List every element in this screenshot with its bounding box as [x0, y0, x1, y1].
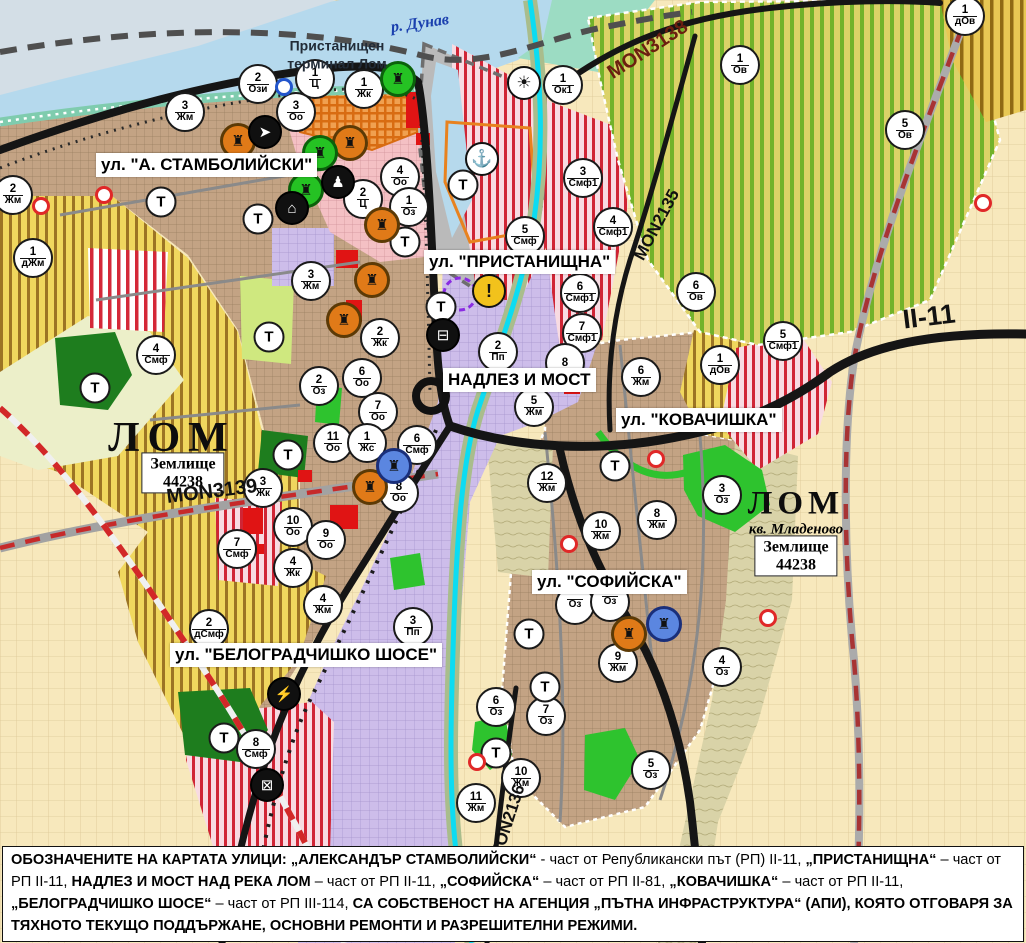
zone-marker-4-Жм: 4Жм	[303, 585, 343, 625]
port-terminal-line2: терминал Лом	[287, 55, 387, 71]
zone-marker-2-Оз: 2Оз	[299, 366, 339, 406]
zone-marker-1-дЖм: 1дЖм	[13, 238, 53, 278]
transport-t-marker: Т	[600, 451, 631, 482]
red-ring-marker	[560, 535, 578, 553]
transport-t-marker: Т	[146, 187, 177, 218]
zone-marker-3-Пп: 3Пп	[393, 607, 433, 647]
zone-marker-2-Жм: 2Жм	[0, 175, 33, 215]
transport-t-marker: Т	[80, 373, 111, 404]
notice-segment: - част от Републикански път (РП) II-11,	[537, 852, 806, 868]
zone-marker-1-дОв: 1дОв	[700, 345, 740, 385]
red-ring-marker	[759, 609, 777, 627]
notice-segment: – част от РП III-114,	[211, 896, 352, 912]
red-ring-marker	[647, 450, 665, 468]
zoning-map-lom: 2Ози1Ц1Жк3Оо3Жм2Жм1дЖм4Оо1Оз2Ц3Жм2Жк6Оо2…	[0, 0, 1026, 943]
zone-marker-9-Оо: 9Оо	[306, 520, 346, 560]
notice-segment: – част от РП II-81,	[539, 874, 669, 890]
key-icon: ➤	[248, 115, 282, 149]
street-label-pristanishtna: ул. "ПРИСТАНИЩНА"	[424, 250, 615, 274]
notice-segment: – част от РП II-11,	[311, 874, 440, 890]
notice-segment: „БЕЛОГРАДЧИШКО ШОСЕ“	[11, 896, 211, 912]
zone-marker-4-Оз: 4Оз	[702, 647, 742, 687]
transport-t-marker: Т	[273, 440, 304, 471]
zone-marker-5-Жм: 5Жм	[514, 387, 554, 427]
transport-t-marker: Т	[254, 322, 285, 353]
notice-segment: НАДЛЕЗ И МОСТ НАД РЕКА ЛОМ	[72, 874, 311, 890]
zone-marker-6-Оз: 6Оз	[476, 687, 516, 727]
zone-marker-10-Жм: 10Жм	[581, 511, 621, 551]
zone-marker-4-Жк: 4Жк	[273, 548, 313, 588]
rail-crossing-icon: ⊠	[250, 768, 284, 802]
zone-marker-1-дОв: 1дОв	[945, 0, 985, 36]
zone-marker-4-Смф: 4Смф	[136, 335, 176, 375]
zone-marker-2-Жк: 2Жк	[360, 318, 400, 358]
zone-marker-4-Смф1: 4Смф1	[593, 207, 633, 247]
road-label-ii-11: II-11	[901, 298, 957, 335]
notice-segment: „ПРИСТАНИЩНА“	[805, 852, 936, 868]
blue-ring-marker	[275, 78, 293, 96]
person-icon: ♟	[321, 165, 355, 199]
zone-marker-3-Оз: 3Оз	[702, 475, 742, 515]
street-label-stamboliyski: ул. "А. СТАМБОЛИЙСКИ"	[96, 153, 317, 177]
transport-t-marker: Т	[209, 723, 240, 754]
zone-marker-11-Жм: 11Жм	[456, 783, 496, 823]
culture-icon: ♜	[326, 302, 362, 338]
culture-icon: ♜	[354, 262, 390, 298]
zone-marker-3-Смф1: 3Смф1	[563, 158, 603, 198]
zone-marker-1-Ок1: 1Ок1	[543, 65, 583, 105]
transport-t-marker: Т	[514, 619, 545, 650]
notice-segment: „СОФИЙСКА“	[440, 874, 540, 890]
zone-marker-8-Смф: 8Смф	[236, 729, 276, 769]
zone-marker-2-Пп: 2Пп	[478, 332, 518, 372]
zone-marker-2-Ози: 2Ози	[238, 64, 278, 104]
red-ring-marker	[95, 186, 113, 204]
ownership-notice: ОБОЗНАЧЕНИТЕ НА КАРТАТА УЛИЦИ: „АЛЕКСАНД…	[2, 846, 1024, 942]
zone-marker-1-Ов: 1Ов	[720, 45, 760, 85]
notice-segment: – част от РП II-11,	[778, 874, 903, 890]
zone-marker-8-Жм: 8Жм	[637, 500, 677, 540]
bus-icon: ⊟	[426, 318, 460, 352]
land-plate-east-line1: Землище	[763, 538, 828, 555]
zone-marker-1-Жк: 1Жк	[344, 69, 384, 109]
culture-icon: ♜	[364, 207, 400, 243]
street-label-kovachishka: ул. "КОВАЧИШКА"	[616, 408, 782, 432]
land-plate-east: Землище 44238	[754, 535, 837, 576]
street-label-nadlez-i-most: НАДЛЕЗ И МОСТ	[443, 368, 596, 392]
zone-marker-6-Ов: 6Ов	[676, 272, 716, 312]
zone-marker-6-Жм: 6Жм	[621, 357, 661, 397]
red-ring-marker	[974, 194, 992, 212]
port-terminal-label: Пристанищен терминал Лом	[287, 38, 387, 73]
land-plate-west-line1: Землище	[150, 455, 215, 472]
zone-marker-5-Оз: 5Оз	[631, 750, 671, 790]
notice-segment: „КОВАЧИШКА“	[669, 874, 778, 890]
zone-marker-7-Смф: 7Смф	[217, 529, 257, 569]
zone-marker-5-Ов: 5Ов	[885, 110, 925, 150]
anchor-icon: ⚓	[465, 142, 499, 176]
notice-segment: „АЛЕКСАНДЪР СТАМБОЛИЙСКИ“	[291, 852, 537, 868]
warning-icon: !	[472, 274, 506, 308]
red-ring-marker	[32, 197, 50, 215]
culture-icon: ♜	[376, 448, 412, 484]
notice-segment: ОБОЗНАЧЕНИТЕ НА КАРТАТА УЛИЦИ:	[11, 852, 291, 868]
zone-marker-6-Смф1: 6Смф1	[560, 273, 600, 313]
zone-marker-12-Жм: 12Жм	[527, 463, 567, 503]
sun-icon: ☀	[507, 66, 541, 100]
transport-t-marker: Т	[530, 672, 561, 703]
port-terminal-line1: Пристанищен	[290, 38, 385, 54]
zone-marker-3-Жм: 3Жм	[291, 261, 331, 301]
street-label-sofiyska: ул. "СОФИЙСКА"	[532, 570, 687, 594]
zone-marker-3-Оо: 3Оо	[276, 92, 316, 132]
land-plate-east-line2: 44238	[776, 556, 816, 573]
culture-icon: ♜	[611, 616, 647, 652]
zone-marker-3-Жм: 3Жм	[165, 92, 205, 132]
lightning-icon: ⚡	[267, 677, 301, 711]
street-label-belogradchishko-shose: ул. "БЕЛОГРАДЧИШКО ШОСЕ"	[170, 643, 442, 667]
zone-marker-5-Смф1: 5Смф1	[763, 321, 803, 361]
city-label-lom-east: ЛОМ	[748, 486, 844, 523]
culture-icon: ♜	[646, 606, 682, 642]
tunnel-icon: ⌂	[275, 191, 309, 225]
transport-t-marker: Т	[243, 204, 274, 235]
red-ring-marker	[468, 753, 486, 771]
